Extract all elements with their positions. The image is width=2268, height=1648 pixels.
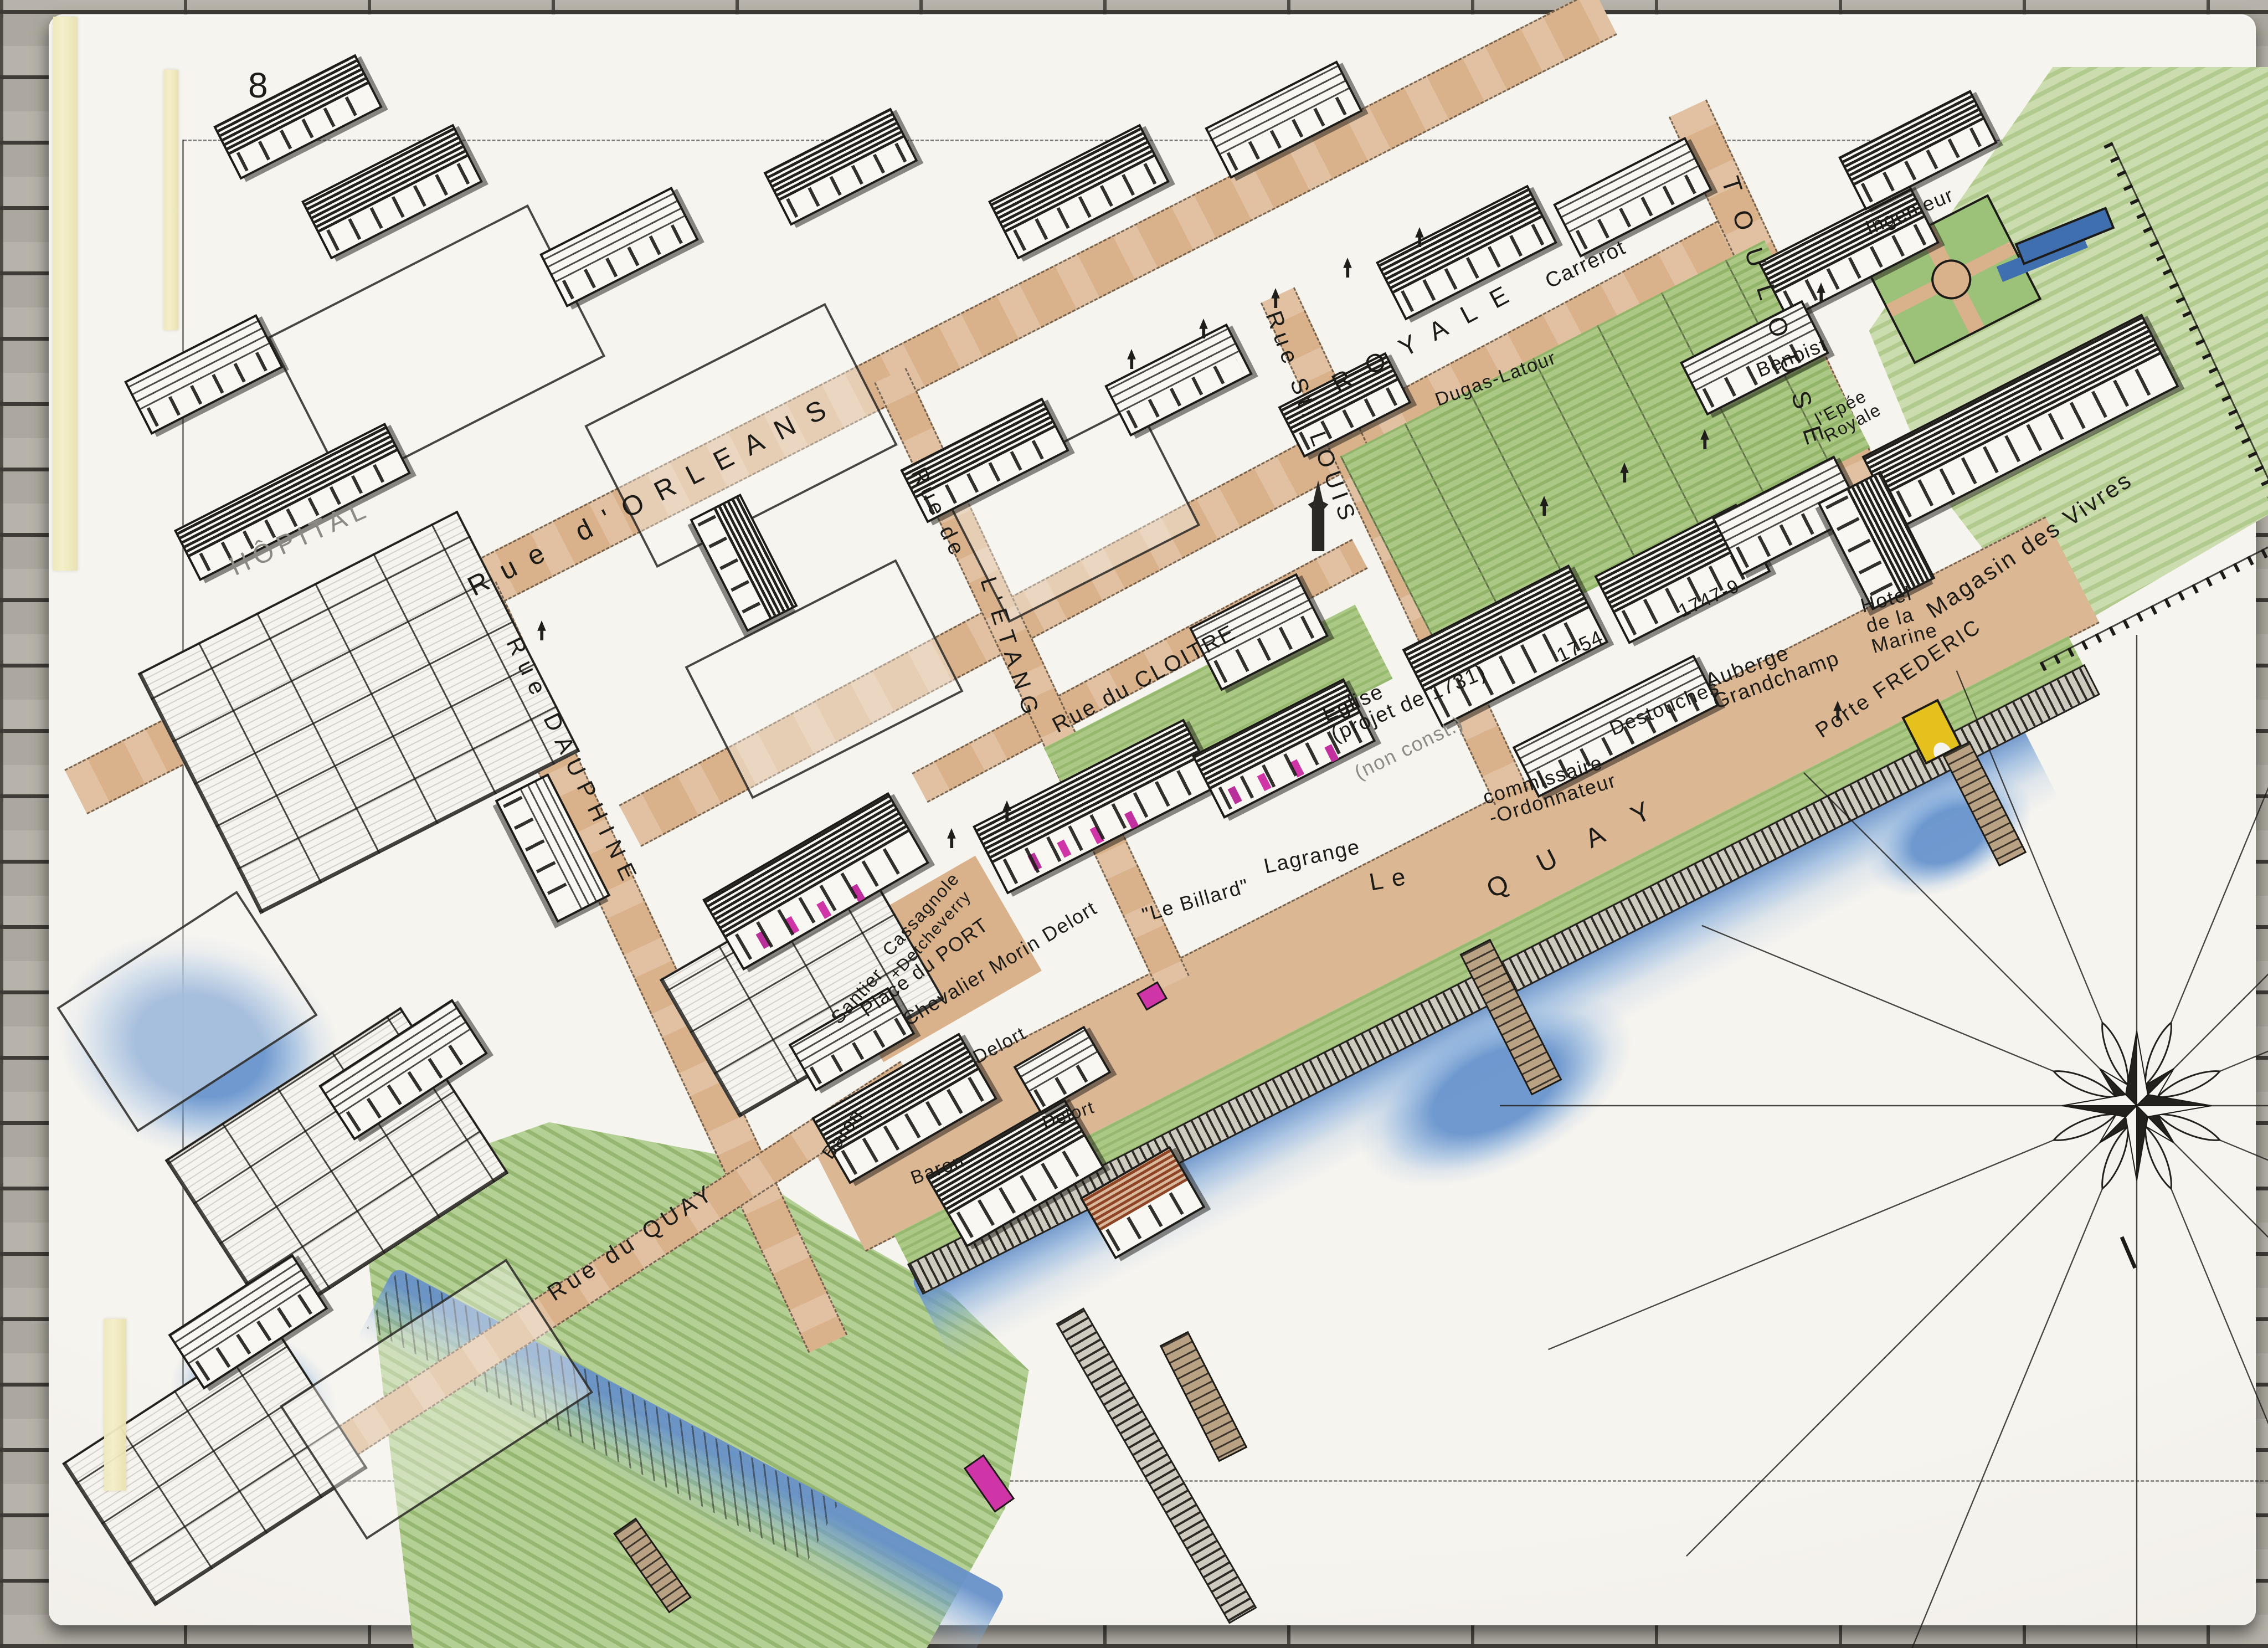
town-building (213, 54, 383, 180)
masking-tape-left (53, 17, 78, 571)
magenta-doors (784, 916, 799, 934)
magenta-doors (1057, 840, 1071, 858)
tree-icon (944, 828, 959, 848)
page-number: 8 (248, 67, 269, 104)
tree-icon (534, 620, 549, 640)
town-building (539, 187, 699, 307)
town-building (1104, 324, 1253, 437)
label-le-billard: "Le Billard" (1140, 875, 1252, 926)
magenta-doors (1257, 773, 1272, 791)
compass-rose: ⚜ (1544, 624, 2268, 1648)
tree-icon (1124, 349, 1139, 369)
town-building (124, 314, 284, 435)
town-building (690, 494, 798, 632)
map-sheet: ⚜ (49, 14, 2256, 1625)
town-building (301, 124, 483, 260)
south-wharf (1160, 1331, 1248, 1462)
masking-tape-inner (164, 70, 178, 330)
tree-icon (1340, 258, 1355, 278)
ray-tick-mark (2122, 1237, 2135, 1268)
map-border-left (182, 140, 184, 1480)
masking-tape-lower-left (104, 1319, 126, 1491)
town-building (764, 107, 918, 225)
scanned-map-photo: ⚜ (0, 0, 2268, 1648)
seawall-south-turn (1056, 1307, 1257, 1624)
